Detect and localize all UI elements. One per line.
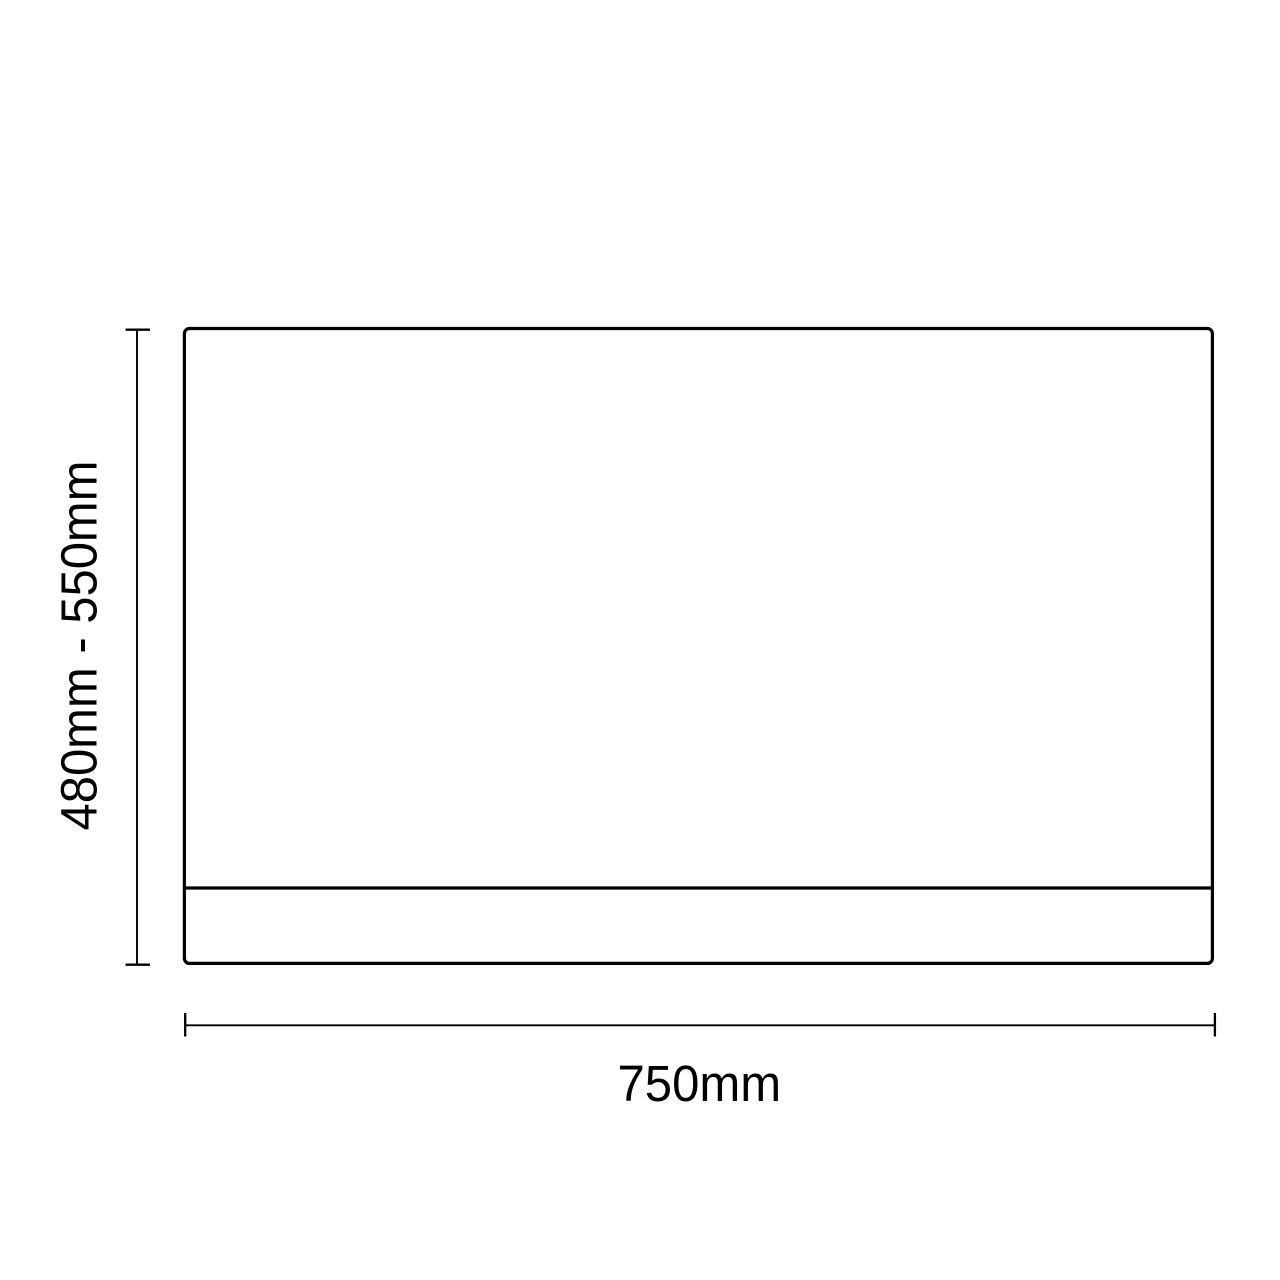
svg-text:480mm - 550mm: 480mm - 550mm [51, 461, 108, 831]
svg-text:750mm: 750mm [618, 1055, 782, 1112]
